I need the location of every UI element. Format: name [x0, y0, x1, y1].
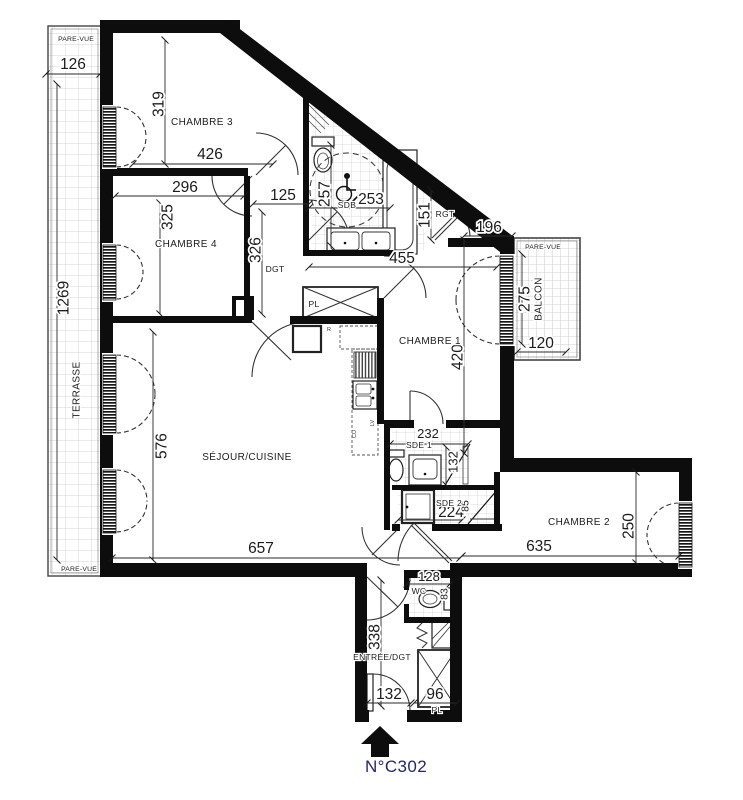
dim-chambre4-w: 296 — [115, 179, 244, 196]
dim-wc-h: 83 — [439, 588, 451, 600]
pare-vue-top-label: PARE-VUE — [58, 36, 94, 43]
terrace: PARE-VUE PARE-VUE TERRASSE 126 1269 — [46, 26, 101, 576]
hob-label: CU — [352, 430, 358, 438]
entree-label: ENTRÉE/DGT — [353, 652, 411, 662]
entrance-arrow-icon — [361, 726, 399, 757]
svg-text:250: 250 — [620, 513, 637, 539]
chambre2-label: CHAMBRE 2 — [548, 517, 610, 528]
svg-text:232: 232 — [417, 426, 439, 441]
svg-text:132: 132 — [446, 451, 461, 473]
svg-text:151: 151 — [416, 202, 433, 228]
sejour-label: SÉJOUR/CUISINE — [202, 450, 292, 463]
window-sejour-2 — [102, 468, 117, 535]
svg-text:120: 120 — [528, 335, 554, 352]
entrance-marker: N°C302 — [361, 726, 427, 776]
entry-pl-label: PL — [432, 705, 443, 715]
window-chambre2 — [678, 501, 693, 569]
svg-text:426: 426 — [197, 146, 223, 163]
chambre1-label: CHAMBRE 1 — [399, 336, 461, 347]
svg-text:338: 338 — [366, 624, 383, 650]
dim-dgt-w: 125 — [253, 187, 309, 204]
dishwasher-label: LV — [370, 420, 376, 427]
dim-sejour-w: 657 — [112, 540, 460, 558]
dim-sejour-h: 576 — [153, 332, 170, 560]
svg-text:257: 257 — [316, 181, 333, 207]
svg-text:319: 319 — [150, 91, 167, 117]
svg-text:96: 96 — [426, 686, 443, 703]
svg-text:576: 576 — [153, 433, 170, 459]
pare-vue-balcony-label: PARE-VUE — [525, 244, 561, 251]
svg-text:126: 126 — [60, 56, 86, 73]
kitchen-fridge — [293, 326, 321, 352]
terrasse-label: TERRASSE — [72, 361, 83, 418]
svg-text:635: 635 — [526, 538, 552, 555]
kitchen-hob — [354, 352, 376, 378]
dim-chambre3-h: 319 — [150, 40, 167, 164]
floor-plan-page: PARE-VUE PARE-VUE TERRASSE 126 1269 PARE… — [0, 0, 743, 800]
svg-text:1269: 1269 — [55, 281, 72, 315]
window-chambre3 — [102, 105, 117, 169]
balcon-label: BALCON — [534, 277, 545, 321]
unit-number: N°C302 — [365, 757, 427, 776]
svg-text:196: 196 — [476, 219, 502, 236]
sde2-label: SDE 2 — [436, 498, 462, 508]
svg-text:125: 125 — [270, 187, 296, 204]
pare-vue-bottom-label: PARE-VUE — [61, 566, 97, 573]
wc-label: WC — [412, 586, 427, 596]
svg-text:128: 128 — [418, 569, 440, 584]
svg-text:275: 275 — [516, 286, 533, 312]
balcony: PARE-VUE BALCON 275 120 — [514, 238, 580, 360]
window-chambre4 — [102, 243, 117, 302]
sde1-label: SDE 1 — [406, 440, 432, 450]
fridge-label: R — [327, 327, 331, 333]
chambre4-label: CHAMBRE 4 — [155, 239, 217, 250]
svg-text:83: 83 — [439, 588, 451, 600]
svg-text:296: 296 — [172, 179, 198, 196]
svg-text:420: 420 — [449, 344, 466, 370]
dgt-label: DGT — [266, 264, 285, 274]
dim-chambre3-w: 426 — [133, 146, 273, 164]
sdb-label: SDB — [338, 200, 356, 210]
svg-text:657: 657 — [248, 540, 274, 557]
kitchen-pl-label: PL — [309, 299, 320, 309]
svg-text:325: 325 — [159, 204, 176, 230]
svg-text:455: 455 — [389, 250, 415, 267]
dim-chambre2-w: 635 — [462, 538, 679, 556]
svg-text:132: 132 — [376, 686, 402, 703]
floor-plan-drawing: PARE-VUE PARE-VUE TERRASSE 126 1269 PARE… — [0, 0, 743, 800]
dim-chambre2-h: 250 — [620, 472, 637, 563]
rgt-label: RGT — [436, 209, 455, 219]
window-chambre1-balcony — [499, 254, 515, 346]
dim-chambre4-h: 325 — [159, 203, 176, 314]
svg-text:253: 253 — [358, 191, 384, 208]
window-sejour-1 — [102, 353, 117, 435]
kitchen: R LV CU — [293, 326, 378, 455]
dimensions: 319 426 296 325 125 326 257 253 151 196 … — [112, 40, 679, 706]
dim-entree-w: 132 — [367, 686, 411, 703]
svg-text:326: 326 — [247, 237, 264, 263]
chambre3-label: CHAMBRE 3 — [171, 117, 233, 128]
kitchen-sink — [353, 381, 377, 409]
